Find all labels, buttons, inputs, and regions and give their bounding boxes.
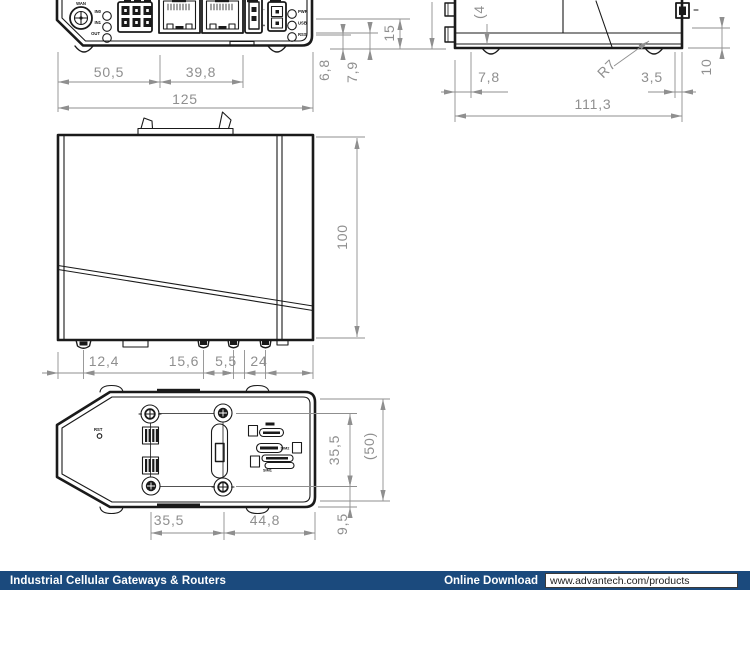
- dim-front-w1: 50,5: [94, 64, 124, 80]
- vent-grille-top: [143, 427, 159, 444]
- dim-right-height: 10: [698, 58, 714, 75]
- dim-right-total: 111,3: [575, 96, 612, 112]
- dim-right-d2: 3,5: [641, 69, 663, 85]
- din-clip-icon: [138, 112, 233, 135]
- dim-front-s3: 15: [381, 24, 397, 41]
- minus-label: -: [263, 7, 265, 12]
- dim-bottom-w1: 35,5: [154, 512, 184, 528]
- dim-front-s1: 6,8: [316, 59, 332, 81]
- footer-category: Industrial Cellular Gateways & Routers: [10, 575, 226, 587]
- out-label: OUT: [91, 31, 100, 36]
- led-usb-label: USB: [298, 21, 307, 26]
- dim-side-b1: 12,4: [89, 353, 119, 369]
- dim-front-w2: 39,8: [186, 64, 216, 80]
- footer-download-label: Online Download: [444, 575, 538, 587]
- front-foot-right: [268, 46, 286, 52]
- side-view-left: [58, 112, 313, 348]
- sim-slots: SIM2 SIM1: [249, 423, 302, 473]
- dim-bottom-h1: 35,5: [326, 435, 342, 465]
- ethernet-port-2-icon: [202, 0, 243, 33]
- dim-right-d1: 7,8: [478, 69, 500, 85]
- technical-drawing: WAN IN0 IN1 OUT: [0, 0, 750, 571]
- antenna-label: WAN: [76, 1, 86, 6]
- led-pwr-label: PWR: [298, 9, 308, 14]
- front-foot-left: [75, 46, 93, 52]
- antenna-connector-icon: [70, 7, 92, 29]
- dim-bottom-h2: 9,5: [334, 513, 350, 535]
- dim-side-b4: 24: [250, 353, 267, 369]
- footer-url-box: www.advantech.com/products: [545, 573, 738, 588]
- dim-bottom-w2: 44,8: [250, 512, 280, 528]
- power-connector-icon: - +: [263, 0, 286, 31]
- footer-url: www.advantech.com/products: [546, 575, 689, 587]
- footer-bar: Industrial Cellular Gateways & Routers O…: [0, 571, 750, 590]
- io-leds: IN0 IN1 OUT: [91, 9, 111, 42]
- dim-side-b2: 15,6: [169, 353, 199, 369]
- reset-hole: [97, 434, 102, 439]
- ethernet-port-1-icon: [159, 0, 200, 33]
- terminal-block-icon: [118, 0, 152, 32]
- side-view-right-dimensions: (4 7,8 3,5 111,3 R7 10: [441, 5, 730, 122]
- dim-right-radius: R7: [594, 56, 619, 81]
- dim-right-cut: (4: [471, 5, 487, 19]
- sim1-label: SIM1: [263, 469, 272, 473]
- center-slot: [212, 424, 228, 478]
- in0-label: IN0: [94, 9, 101, 14]
- dim-front-s2: 7,9: [344, 61, 360, 83]
- dc-connector-icon: [676, 3, 698, 18]
- datasheet-page: { "dims": { "front": { "w1": "50,5", "w2…: [0, 0, 750, 650]
- in1-label: IN1: [94, 20, 101, 25]
- sim2-label: SIM2: [281, 447, 290, 451]
- usb-port-icon: [245, 0, 262, 33]
- vent-grille-bottom: [143, 457, 159, 474]
- reset-label: RST: [94, 427, 103, 432]
- dim-side-b3: 5,5: [215, 353, 237, 369]
- dim-bottom-total: (50): [361, 432, 377, 460]
- screw-holes: [139, 404, 234, 496]
- dim-front-total: 125: [172, 91, 198, 107]
- plus-label: +: [263, 23, 266, 28]
- status-leds: PWR USB RSS: [288, 9, 308, 41]
- led-rss-label: RSS: [298, 32, 307, 37]
- bottom-view: RST SIM2 SIM1: [57, 386, 315, 514]
- dim-side-height: 100: [334, 224, 350, 250]
- front-panel-view: WAN IN0 IN1 OUT: [57, 0, 312, 52]
